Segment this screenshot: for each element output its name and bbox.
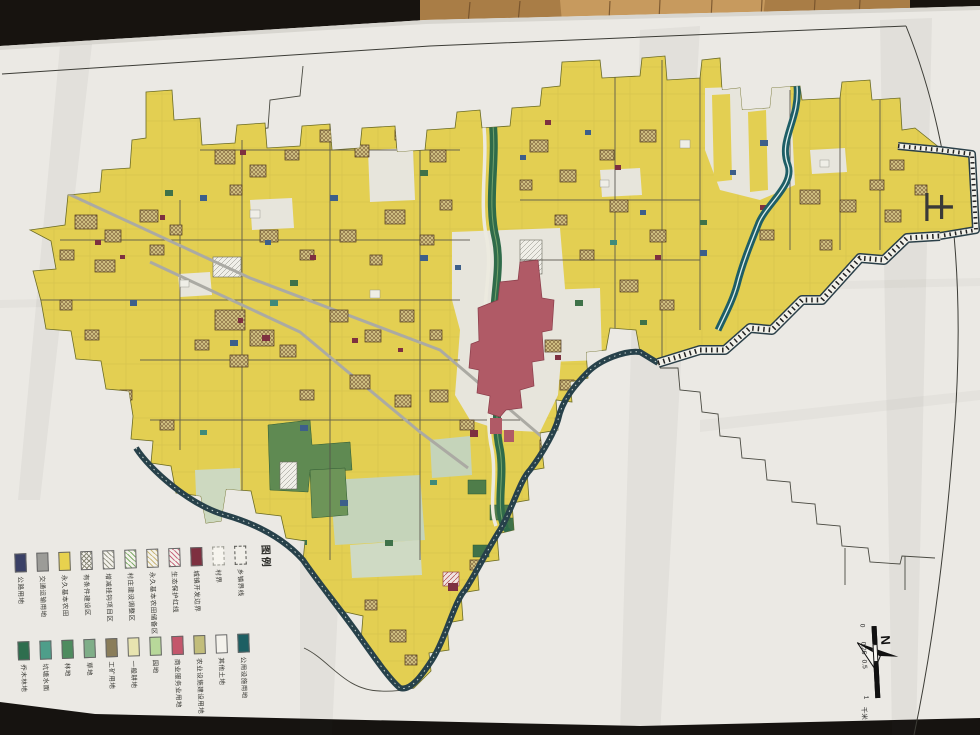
field-strip	[712, 94, 732, 182]
scalebar-unit: 千米	[860, 706, 871, 720]
north-label: N	[878, 635, 894, 645]
scalebar-tick: 1	[862, 695, 869, 699]
map-photo	[0, 0, 980, 735]
field-strip	[748, 110, 768, 192]
map-title-fragment: 土	[918, 192, 962, 228]
scalebar-tick: 0	[858, 624, 865, 628]
compass: N	[840, 626, 913, 681]
